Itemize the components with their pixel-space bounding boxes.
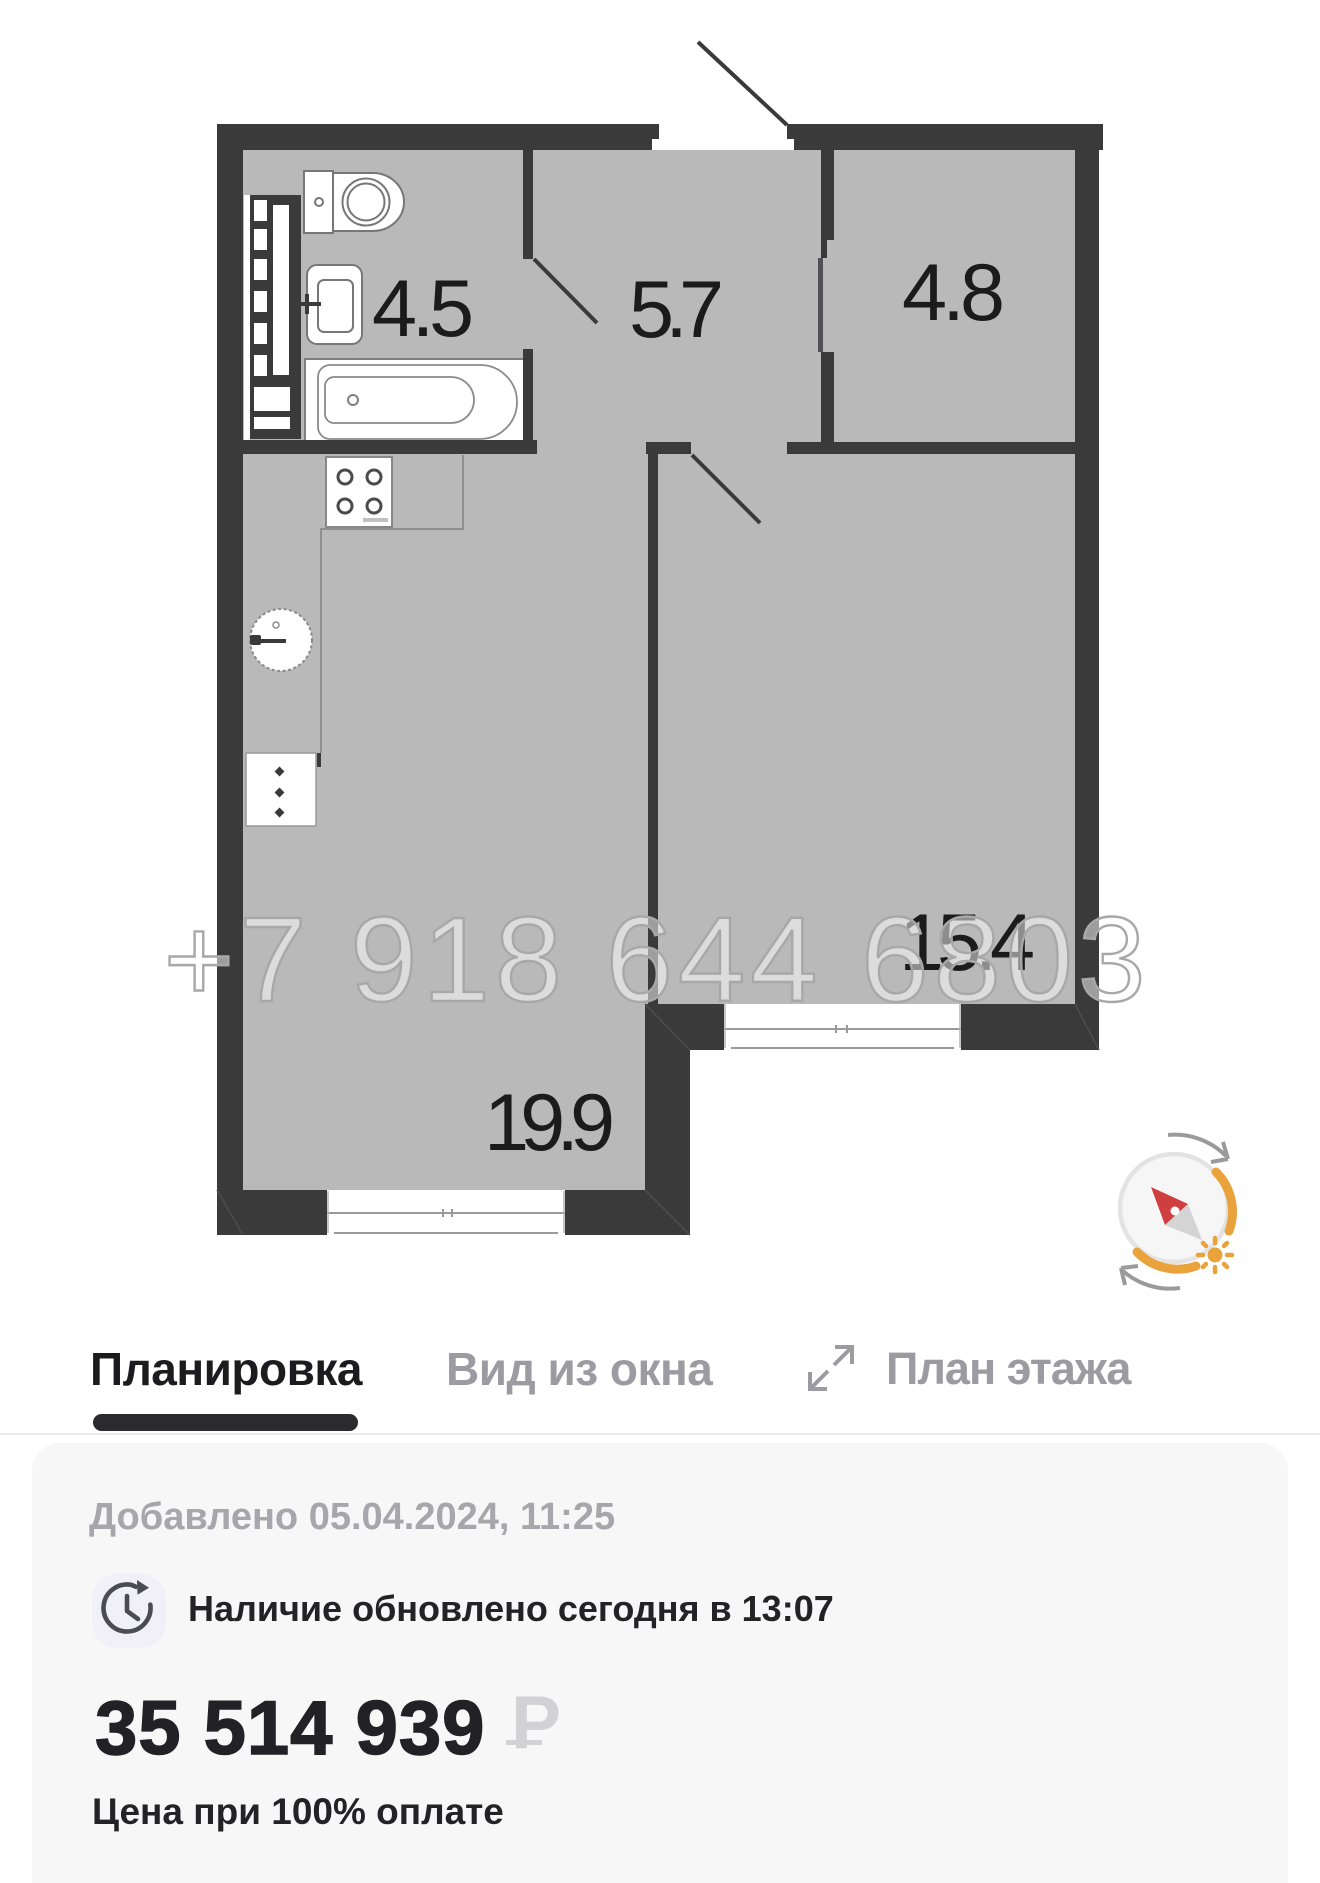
svg-text:19.9: 19.9 bbox=[484, 1078, 615, 1168]
svg-text:4.8: 4.8 bbox=[902, 248, 1005, 338]
svg-text:5.7: 5.7 bbox=[629, 265, 724, 355]
svg-text:+7 918 644 6803: +7 918 644 6803 bbox=[164, 891, 1151, 1027]
svg-text:4.5: 4.5 bbox=[372, 264, 474, 354]
